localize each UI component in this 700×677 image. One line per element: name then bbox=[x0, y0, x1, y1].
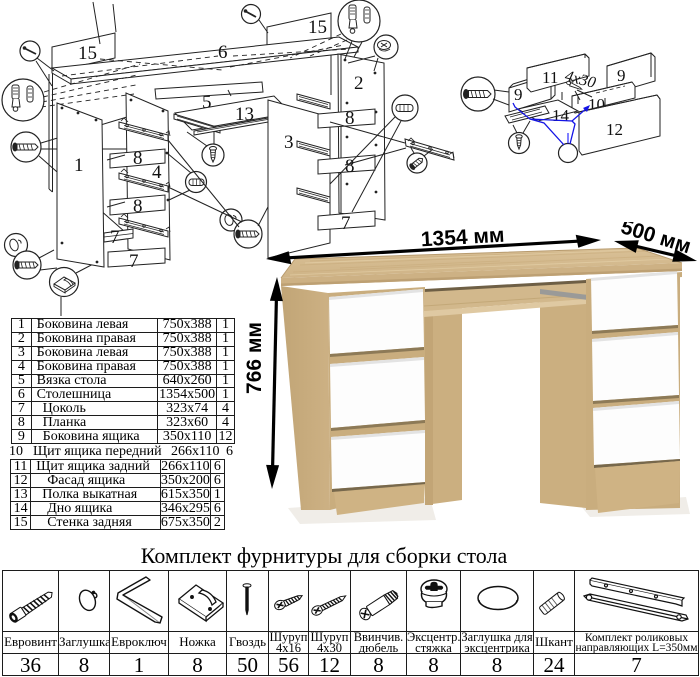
svg-text:4: 4 bbox=[152, 162, 162, 183]
svg-text:9: 9 bbox=[514, 85, 523, 104]
svg-text:766 мм: 766 мм bbox=[243, 322, 266, 394]
svg-text:1354 мм: 1354 мм bbox=[420, 224, 505, 252]
svg-text:3: 3 bbox=[284, 132, 294, 153]
svg-text:8: 8 bbox=[133, 148, 143, 169]
svg-text:8: 8 bbox=[133, 196, 143, 217]
svg-text:1: 1 bbox=[74, 155, 84, 176]
svg-text:15: 15 bbox=[308, 17, 327, 38]
svg-text:15: 15 bbox=[78, 43, 97, 64]
svg-text:11: 11 bbox=[542, 68, 558, 87]
svg-text:8: 8 bbox=[345, 108, 355, 129]
svg-text:12: 12 bbox=[606, 120, 623, 139]
svg-text:14: 14 bbox=[552, 106, 570, 125]
svg-text:6: 6 bbox=[218, 42, 228, 63]
svg-text:7: 7 bbox=[110, 227, 120, 248]
svg-text:2: 2 bbox=[354, 73, 364, 94]
svg-text:9: 9 bbox=[617, 66, 626, 85]
svg-text:7: 7 bbox=[129, 251, 139, 272]
